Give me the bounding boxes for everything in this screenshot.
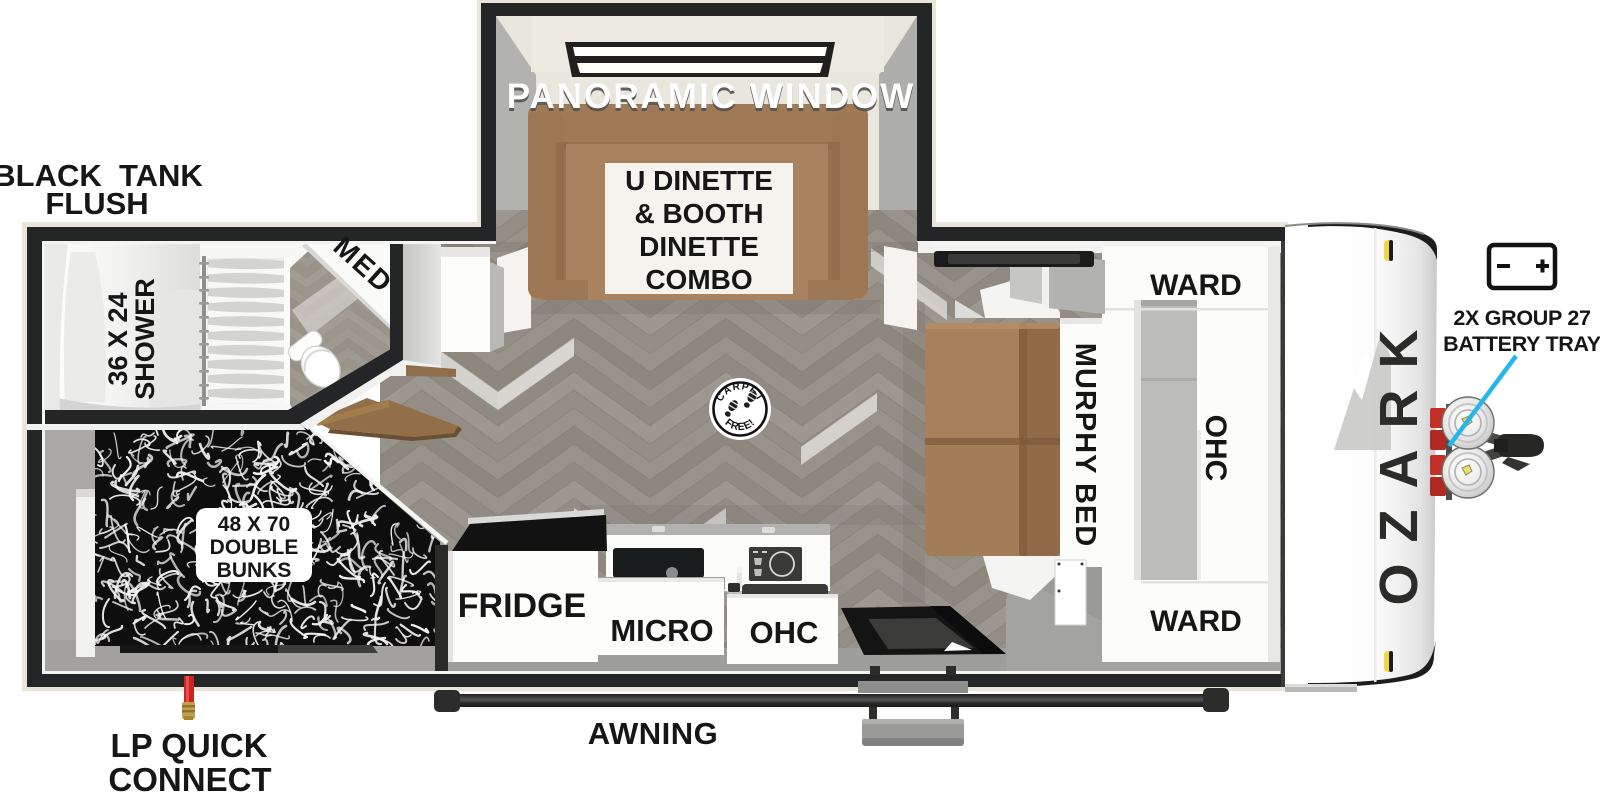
svg-text:CONNECT: CONNECT	[108, 761, 271, 794]
svg-text:MURPHY BED: MURPHY BED	[1069, 343, 1101, 547]
svg-text:WARD: WARD	[1150, 605, 1242, 638]
svg-text:U DINETTE: U DINETTE	[625, 165, 773, 196]
svg-text:PANORAMIC WINDOW: PANORAMIC WINDOW	[507, 77, 916, 116]
svg-text:DOUBLE: DOUBLE	[210, 536, 299, 559]
svg-text:36 X 24SHOWER: 36 X 24SHOWER	[103, 278, 160, 400]
svg-text:2X GROUP 27: 2X GROUP 27	[1453, 306, 1591, 330]
svg-text:FLUSH: FLUSH	[45, 186, 148, 221]
svg-text:DINETTE: DINETTE	[639, 231, 759, 262]
svg-text:WARD: WARD	[1150, 269, 1242, 302]
svg-text:FRIDGE: FRIDGE	[458, 587, 586, 625]
svg-text:MICRO: MICRO	[610, 613, 713, 648]
svg-text:LP QUICK: LP QUICK	[110, 727, 267, 764]
svg-text:48 X 70: 48 X 70	[218, 513, 290, 536]
svg-text:OZARK: OZARK	[1369, 309, 1429, 606]
svg-text:OHC: OHC	[1199, 415, 1232, 482]
svg-text:BUNKS: BUNKS	[217, 559, 292, 582]
svg-text:& BOOTH: & BOOTH	[634, 198, 763, 229]
svg-text:COMBO: COMBO	[645, 264, 752, 295]
svg-text:AWNING: AWNING	[588, 716, 718, 751]
svg-text:BATTERY TRAY: BATTERY TRAY	[1443, 332, 1600, 356]
svg-text:OHC: OHC	[750, 615, 819, 650]
